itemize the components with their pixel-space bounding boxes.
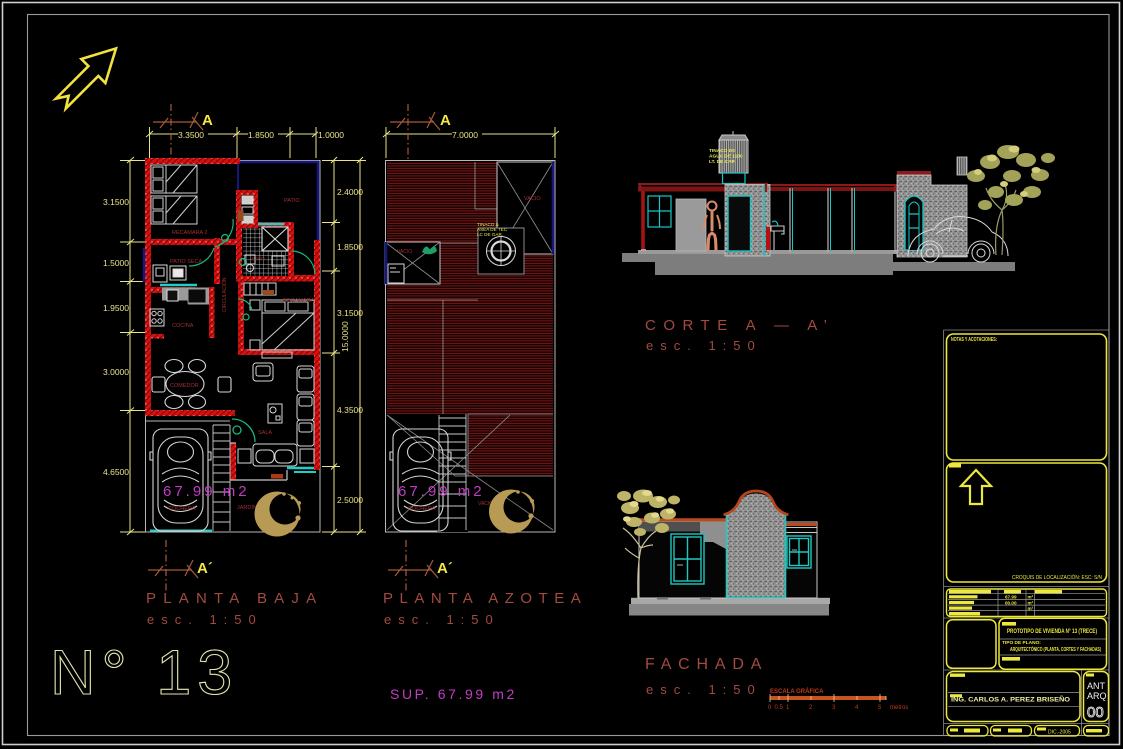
svg-text:DIC.-2005: DIC.-2005: [1048, 730, 1071, 736]
svg-text:metros: metros: [890, 705, 908, 711]
svg-text:PROTOTIPO DE VIVIENDA N° 13 (T: PROTOTIPO DE VIVIENDA N° 13 (TRECE): [1007, 629, 1097, 635]
svg-text:PLANTA AZOTEA: PLANTA AZOTEA: [383, 590, 587, 607]
svg-text:2.5000: 2.5000: [337, 495, 363, 505]
svg-text:1.0000: 1.0000: [318, 130, 344, 140]
svg-text:7.0000: 7.0000: [452, 130, 478, 140]
svg-text:15.0000: 15.0000: [340, 321, 350, 352]
svg-text:CROQUIS DE LOCALIZACIÓN: ESC:: CROQUIS DE LOCALIZACIÓN: ESC: S/N: [1012, 574, 1102, 581]
svg-text:00: 00: [1087, 704, 1104, 721]
svg-text:COCHERA: COCHERA: [408, 506, 436, 512]
svg-text:00.00: 00.00: [1005, 600, 1017, 605]
svg-text:COMEDOR: COMEDOR: [170, 383, 199, 389]
svg-text:PATIO: PATIO: [284, 198, 300, 204]
svg-text:3.0000: 3.0000: [103, 367, 129, 377]
svg-text:SUP. 67.99 m2: SUP. 67.99 m2: [390, 686, 517, 702]
svg-text:3.3500: 3.3500: [178, 130, 204, 140]
svg-text:FACHADA: FACHADA: [645, 656, 768, 673]
svg-text:A´: A´: [437, 560, 453, 577]
svg-text:1.8500: 1.8500: [337, 242, 363, 252]
svg-text:CORTE A — A’: CORTE A — A’: [645, 317, 834, 334]
svg-text:ARQUITECTÓNICO (PLANTA, CORTES: ARQUITECTÓNICO (PLANTA, CORTES Y FACHADA…: [1010, 645, 1101, 653]
svg-text:ARQ: ARQ: [1087, 691, 1107, 701]
svg-text:VACIO: VACIO: [397, 249, 412, 255]
svg-text:esc. 1:50: esc. 1:50: [147, 612, 263, 627]
svg-text:TIPO DE PLANO:: TIPO DE PLANO:: [1002, 640, 1041, 646]
svg-text:VACIO: VACIO: [524, 196, 541, 202]
svg-text:1.5000: 1.5000: [103, 258, 129, 268]
svg-text:esc. 1:50: esc. 1:50: [646, 338, 762, 353]
svg-text:4.6500: 4.6500: [103, 467, 129, 477]
svg-text:3.1500: 3.1500: [337, 308, 363, 318]
svg-text:A: A: [202, 112, 213, 129]
svg-text:esc. 1:50: esc. 1:50: [646, 682, 762, 697]
svg-text:NOTAS Y ACOTACIONES:: NOTAS Y ACOTACIONES:: [951, 337, 997, 343]
svg-text:67.99 m2: 67.99 m2: [398, 483, 485, 500]
svg-text:JARDÍN: JARDÍN: [237, 504, 257, 511]
svg-text:AGUA DE 1100: AGUA DE 1100: [709, 154, 743, 160]
svg-text:67.99 m2: 67.99 m2: [163, 483, 250, 500]
svg-text:m²: m²: [1028, 595, 1034, 600]
svg-text:m²: m²: [1028, 600, 1034, 605]
svg-text:A´: A´: [197, 560, 213, 577]
svg-text:2.4000: 2.4000: [337, 187, 363, 197]
svg-text:BAÑO: BAÑO: [252, 255, 265, 261]
svg-text:COCINA: COCINA: [172, 323, 194, 329]
svg-text:N° 13: N° 13: [50, 638, 238, 708]
svg-text:ING. CARLOS A. PEREZ BRISEÑO: ING. CARLOS A. PEREZ BRISEÑO: [951, 697, 1070, 704]
svg-text:CIRCULACIÓN: CIRCULACIÓN: [221, 277, 228, 312]
svg-text:67.99: 67.99: [1005, 595, 1017, 600]
svg-text:1.9500: 1.9500: [103, 303, 129, 313]
svg-text:PLANTA BAJA: PLANTA BAJA: [146, 590, 323, 607]
svg-text:3.1500: 3.1500: [103, 197, 129, 207]
svg-text:4.3500: 4.3500: [337, 405, 363, 415]
svg-text:LC DE GAR.: LC DE GAR.: [477, 232, 503, 237]
svg-text:TINACO DE: TINACO DE: [709, 148, 736, 154]
svg-text:COCHERA: COCHERA: [168, 506, 196, 512]
svg-text:RECAMARA 1: RECAMARA 1: [283, 298, 318, 304]
svg-text:A: A: [440, 112, 451, 129]
svg-text:ANT: ANT: [1087, 681, 1106, 691]
svg-text:LT. DE CAP.: LT. DE CAP.: [709, 159, 736, 165]
svg-text:m²: m²: [1028, 606, 1034, 611]
svg-text:1.8500: 1.8500: [248, 130, 274, 140]
svg-text:0.5: 0.5: [775, 705, 784, 711]
svg-text:SALA: SALA: [258, 430, 272, 436]
svg-text:RECAMARA 2: RECAMARA 2: [172, 230, 207, 236]
svg-text:ESCALA GRÁFICA: ESCALA GRÁFICA: [770, 688, 824, 695]
svg-text:esc. 1:50: esc. 1:50: [384, 612, 500, 627]
